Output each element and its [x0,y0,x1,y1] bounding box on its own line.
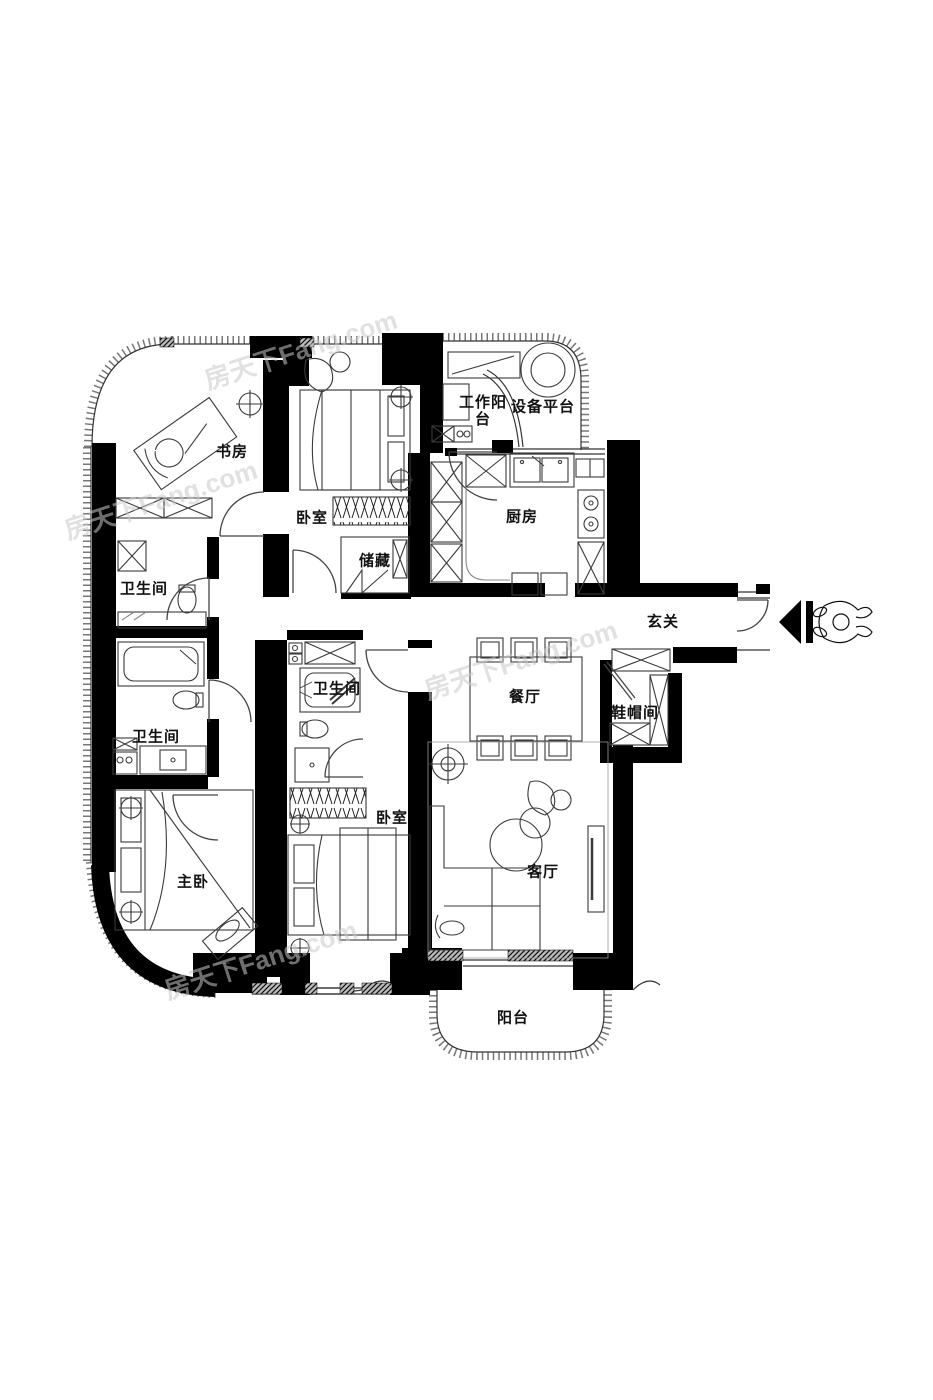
study-downlight [236,390,264,418]
bathroom-3-fixtures [289,642,360,782]
floorplan-page: 书房 卧室 工作阳台 设备平台 厨房 玄关 储藏 卫生间 卫生间 卫生间 餐厅 … [0,0,933,1400]
label-cloakroom: 鞋帽间 [611,705,659,722]
walls [92,333,770,995]
label-entry-hall: 玄关 [647,614,679,631]
bathroom-2-fixtures [113,642,206,774]
bedroom-top-bed [300,390,410,490]
master-downlights [119,796,143,924]
entry-marker [779,600,872,644]
label-dining-room: 餐厅 [509,689,541,706]
equipment-circle [521,343,575,397]
bedroom-mid-bed [288,828,410,940]
bedroom-mid-downlights [290,814,310,958]
label-balcony: 阳台 [497,1010,529,1027]
label-master-bedroom: 主卧 [177,874,209,891]
living-room-furniture [428,742,608,958]
label-bathroom-1: 卫生间 [120,581,168,598]
label-living-room: 客厅 [527,864,559,881]
label-kitchen: 厨房 [506,509,538,526]
person-icon [812,601,872,642]
label-bathroom-3: 卫生间 [313,681,361,698]
floorplan-drawing [0,0,933,1400]
label-study: 书房 [216,444,248,461]
bedroom-mid-wardrobe [290,788,366,818]
label-work-balcony: 工作阳台 [459,394,507,428]
label-bedroom-mid: 卧室 [376,810,408,827]
window-sills [160,338,573,994]
label-equipment-platform: 设备平台 [511,399,575,416]
label-bathroom-2: 卫生间 [132,729,180,746]
label-bedroom-top: 卧室 [296,510,328,527]
cloakroom-cabinets [610,649,670,745]
master-bed [115,790,253,930]
label-storage: 储藏 [359,553,391,570]
entry-arrow-icon [779,600,801,644]
study-shelves [116,498,212,518]
bedroom-top-wardrobe [333,497,410,525]
